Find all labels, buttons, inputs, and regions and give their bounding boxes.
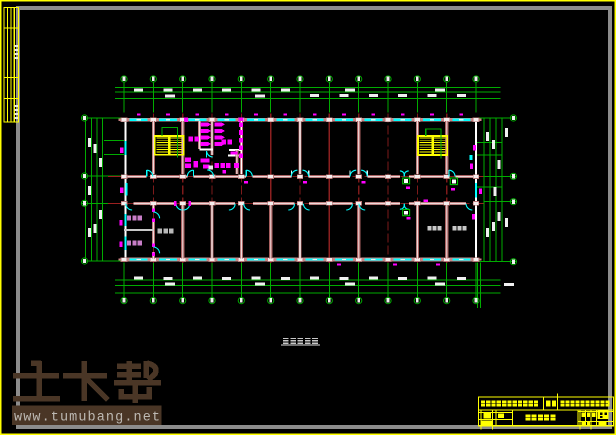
svg-text:www.tumubang.net: www.tumubang.net: [14, 411, 160, 426]
